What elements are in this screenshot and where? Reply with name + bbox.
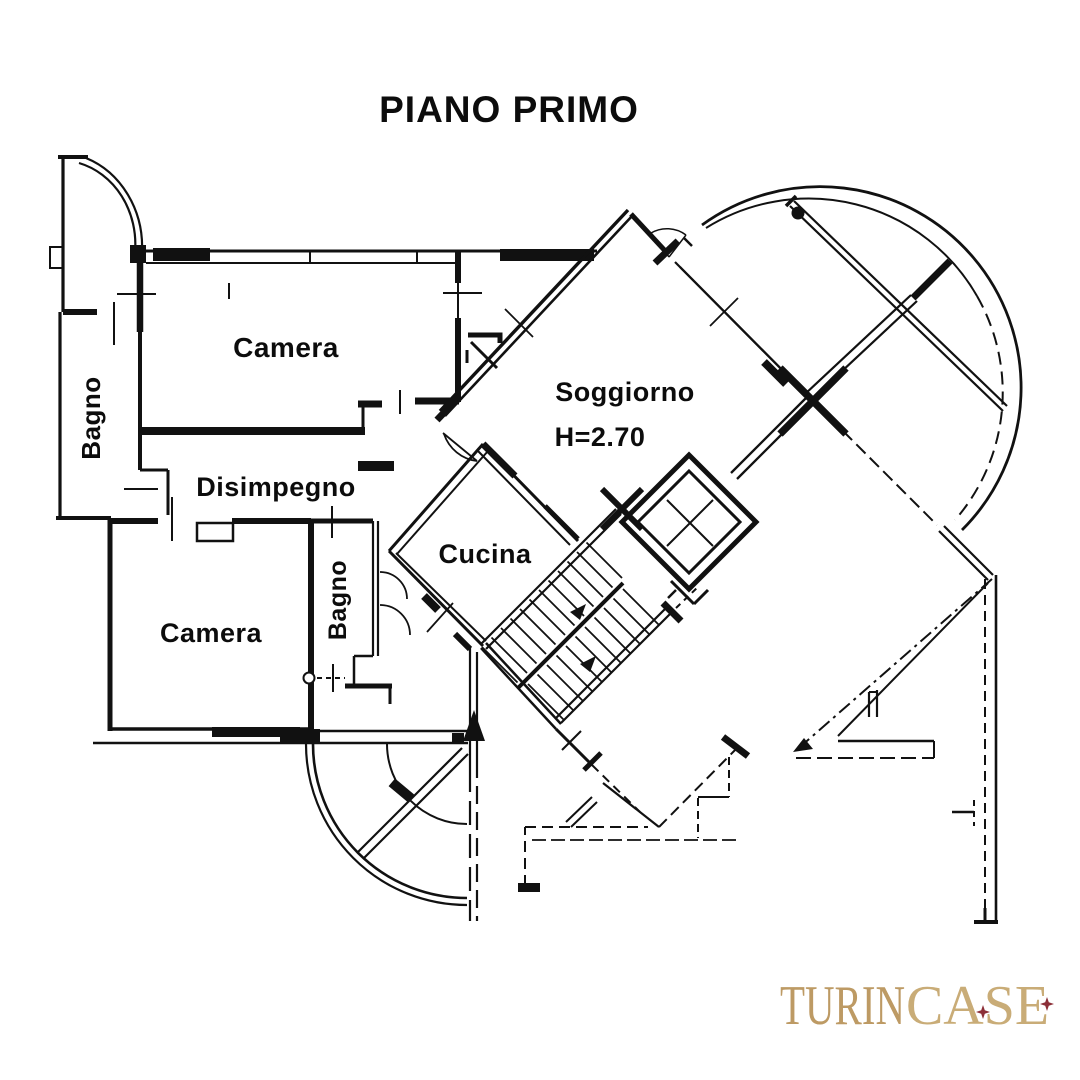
svg-text:Camera: Camera xyxy=(160,618,263,648)
svg-text:TURIN: TURIN xyxy=(780,975,905,1037)
svg-text:Disimpegno: Disimpegno xyxy=(196,472,356,502)
svg-text:H=2.70: H=2.70 xyxy=(555,422,646,452)
svg-text:CASE: CASE xyxy=(906,975,1049,1037)
svg-text:Cucina: Cucina xyxy=(438,539,532,569)
svg-text:Bagno: Bagno xyxy=(76,376,106,459)
svg-text:Camera: Camera xyxy=(233,332,339,363)
svg-text:Soggiorno: Soggiorno xyxy=(555,377,694,407)
svg-text:Bagno: Bagno xyxy=(324,560,352,640)
svg-text:PIANO PRIMO: PIANO PRIMO xyxy=(379,89,639,130)
